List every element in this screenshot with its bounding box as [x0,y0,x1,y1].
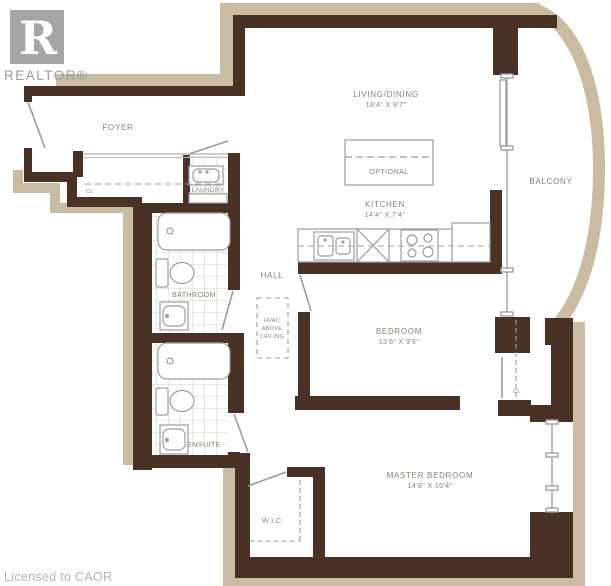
bathtub-bathroom [158,213,230,250]
realtor-wordmark: REALTOR® [4,68,88,83]
wic-shelf-dashes [250,480,300,541]
label-foyer: FOYER [102,123,133,132]
label-closet-bedroom: CL [513,389,521,395]
label-optional: OPTIONAL [369,169,408,176]
logo-r: R [19,11,58,65]
bedroom-door [300,275,311,311]
floor-plan-svg: LIVING/DINING 18'4" X 9'7" OPTIONAL KITC… [0,0,611,586]
balcony-curved-wall [530,3,605,334]
label-bedroom-dims: 13'6" X 9'6" [379,339,420,346]
label-living-dining: LIVING/DINING [353,90,419,99]
label-closet-foyer: CL [86,189,94,195]
sink-ensuite [160,425,188,454]
label-hall: HALL [261,271,284,280]
label-hvac-2: ABOVE [262,326,282,332]
label-kitchen-dims: 14'4" X 7'4" [365,212,406,219]
entry-door [28,102,45,148]
walls [24,15,573,578]
kitchen-counter [298,223,490,262]
ensuite-door [234,414,248,452]
label-hvac-3: CEILING [260,334,284,340]
label-laundry: LAUNDRY [191,187,224,194]
label-living-dining-dims: 18'4" X 9'7" [366,102,407,109]
sink-bathroom [160,302,188,330]
balcony-sliding-door [500,80,506,146]
island-optional [345,140,433,185]
laundry-door [189,141,228,154]
floor-plan-page: LIVING/DINING 18'4" X 9'7" OPTIONAL KITC… [0,0,611,586]
label-balcony: BALCONY [529,177,572,186]
master-window [546,420,558,512]
label-wic: W.I.C. [262,518,284,525]
label-kitchen: KITCHEN [365,200,405,209]
fridge [452,223,490,262]
windows [500,74,558,512]
bathtub-ensuite [158,343,230,379]
footer-license: Licensed to CAOR [4,570,112,584]
label-master-bedroom-dims: 14'8" X 10'4" [408,483,453,490]
wic-door [248,472,286,486]
label-hvac-1: HVAC [264,318,280,324]
label-master-bedroom: MASTER BEDROOM [387,471,474,480]
label-ensuite: ENSUITE [187,442,221,449]
realtor-logo: R REALTOR® [4,10,88,83]
label-bathroom: BATHROOM [172,292,216,299]
label-bedroom: BEDROOM [376,327,422,336]
